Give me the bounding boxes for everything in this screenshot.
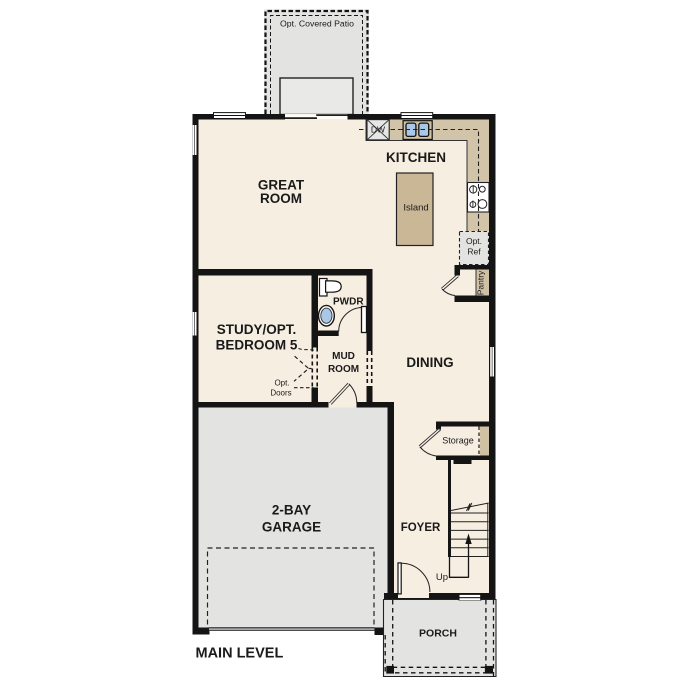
svg-text:BEDROOM 5: BEDROOM 5: [216, 338, 298, 353]
svg-text:FOYER: FOYER: [401, 522, 441, 534]
svg-text:MUD: MUD: [332, 351, 355, 362]
svg-text:Island: Island: [403, 203, 428, 214]
svg-text:Opt.: Opt.: [466, 236, 482, 246]
svg-text:DW: DW: [371, 125, 385, 135]
svg-text:Ref: Ref: [467, 247, 481, 257]
svg-text:Opt. Covered Patio: Opt. Covered Patio: [280, 19, 354, 29]
svg-text:Storage: Storage: [442, 436, 474, 446]
svg-text:PORCH: PORCH: [419, 628, 457, 640]
svg-text:Pantry: Pantry: [476, 270, 486, 295]
svg-text:2-BAY: 2-BAY: [272, 503, 311, 518]
svg-text:Doors: Doors: [270, 389, 291, 398]
svg-text:STUDY/OPT.: STUDY/OPT.: [217, 322, 297, 337]
svg-text:GARAGE: GARAGE: [262, 520, 321, 535]
svg-text:Opt.: Opt.: [274, 379, 289, 388]
svg-text:Up: Up: [436, 572, 448, 583]
svg-text:ROOM: ROOM: [260, 191, 302, 206]
svg-text:MAIN LEVEL: MAIN LEVEL: [196, 646, 284, 662]
svg-text:KITCHEN: KITCHEN: [386, 150, 446, 165]
svg-text:ROOM: ROOM: [328, 364, 359, 375]
svg-text:PWDR: PWDR: [333, 297, 364, 308]
svg-text:DINING: DINING: [406, 355, 453, 370]
